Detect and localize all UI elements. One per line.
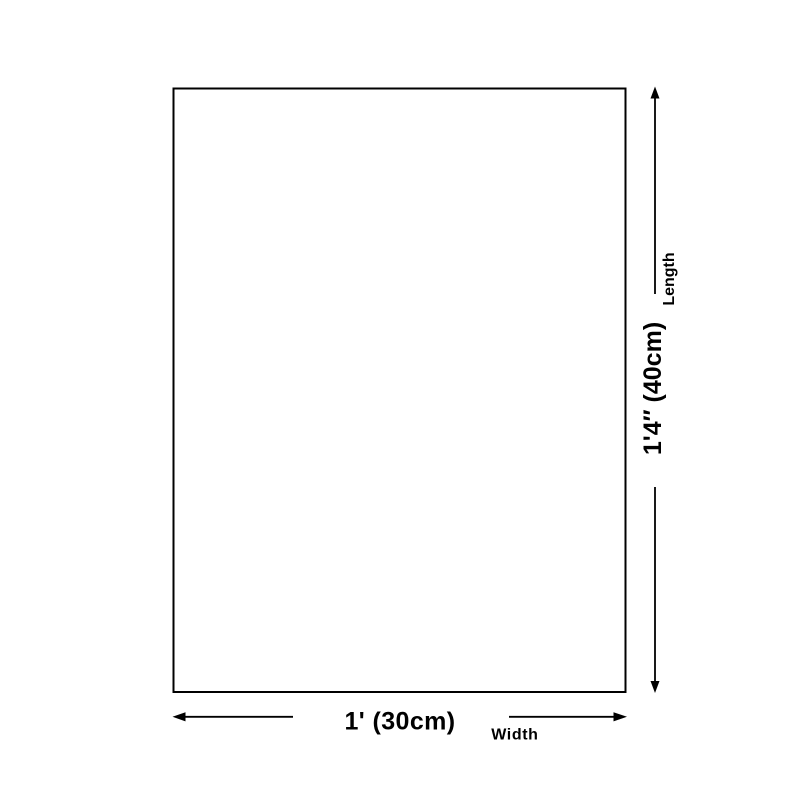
svg-text:Length: Length xyxy=(661,252,678,305)
svg-text:1'4″ (40cm): 1'4″ (40cm) xyxy=(639,322,667,455)
svg-text:1' (30cm): 1' (30cm) xyxy=(345,707,456,735)
svg-text:Width: Width xyxy=(491,726,538,743)
